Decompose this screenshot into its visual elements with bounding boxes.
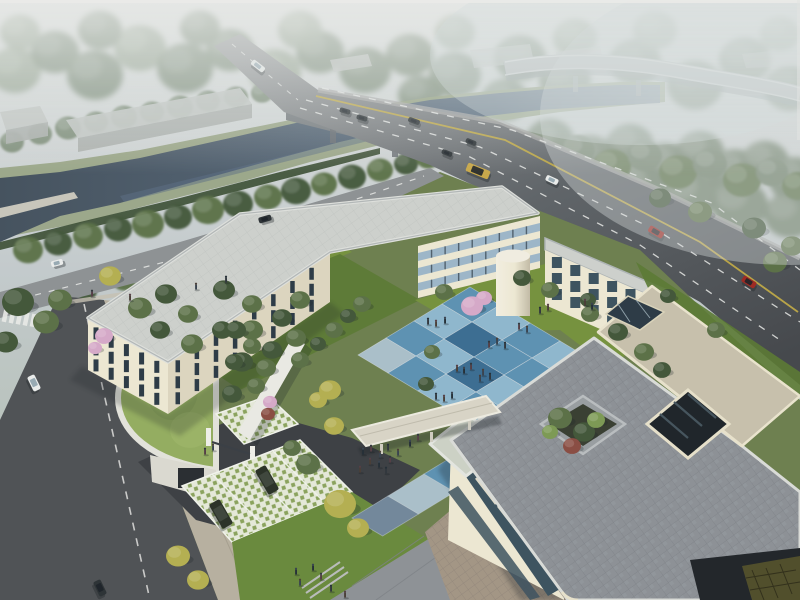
person <box>488 342 490 347</box>
tree-highlight <box>326 492 344 506</box>
mullion <box>526 226 527 234</box>
tree-highlight <box>189 572 201 582</box>
person <box>91 291 93 296</box>
tree-highlight <box>225 193 242 207</box>
window <box>139 368 144 380</box>
mullion <box>444 246 445 254</box>
tree-highlight <box>256 187 271 200</box>
window <box>139 384 144 396</box>
mullion <box>512 230 513 238</box>
person-head <box>225 276 227 278</box>
stair-tower <box>496 256 530 316</box>
person-head <box>456 365 458 367</box>
mullion <box>431 280 432 288</box>
tree-highlight <box>588 413 598 421</box>
tree-highlight <box>575 424 587 434</box>
person <box>539 308 541 313</box>
tree-highlight <box>326 323 336 331</box>
person-head <box>204 448 206 450</box>
person-head <box>443 395 445 397</box>
tree-highlight <box>311 338 320 345</box>
person <box>320 574 322 579</box>
person-head <box>482 369 484 371</box>
person-head <box>195 283 197 285</box>
person-head <box>489 373 491 375</box>
person <box>456 366 458 371</box>
person-head <box>91 290 93 292</box>
person <box>443 396 445 401</box>
mullion <box>485 266 486 274</box>
mullion <box>472 255 473 263</box>
mullion <box>485 251 486 259</box>
tree-highlight <box>636 345 647 354</box>
person-head <box>369 458 371 460</box>
tree-highlight <box>134 212 152 226</box>
tree-highlight <box>183 336 195 346</box>
tree-highlight <box>228 323 239 332</box>
tree-highlight <box>180 307 191 316</box>
window <box>176 360 181 372</box>
window <box>290 281 295 293</box>
person-head <box>385 467 387 469</box>
person-head <box>379 451 381 453</box>
person <box>470 364 472 369</box>
person <box>496 339 498 344</box>
window <box>109 368 114 380</box>
window <box>570 297 580 308</box>
tree-highlight <box>610 325 621 334</box>
tree-highlight <box>349 520 361 530</box>
tree-highlight <box>298 455 311 466</box>
person <box>547 305 549 310</box>
window <box>154 393 159 405</box>
person <box>344 592 346 597</box>
person <box>369 459 371 464</box>
mullion <box>431 265 432 273</box>
person <box>129 295 131 300</box>
window <box>309 268 314 280</box>
person <box>504 343 506 348</box>
person-head <box>129 294 131 296</box>
person-head <box>212 444 214 446</box>
gate-pillar <box>206 428 211 446</box>
person-head <box>435 393 437 395</box>
stair-tower-top <box>496 250 530 263</box>
person-head <box>496 338 498 340</box>
tree-highlight <box>258 361 269 370</box>
tree-highlight <box>274 311 285 320</box>
person <box>397 450 399 455</box>
person-head <box>591 303 593 305</box>
window <box>214 366 219 378</box>
tree-highlight <box>46 233 61 246</box>
person-head <box>387 444 389 446</box>
tree-highlight <box>15 239 32 253</box>
person <box>389 457 391 462</box>
person-head <box>378 461 380 463</box>
person-head <box>362 448 364 450</box>
person <box>417 435 419 440</box>
person-head <box>344 591 346 593</box>
tree-highlight <box>514 271 524 279</box>
tree-highlight <box>425 346 434 353</box>
person-head <box>397 449 399 451</box>
window <box>154 361 159 373</box>
person-head <box>299 579 301 581</box>
tree-highlight <box>89 343 97 349</box>
person <box>479 376 481 381</box>
window <box>570 265 580 276</box>
tree-highlight <box>708 323 718 331</box>
tree-highlight <box>152 323 163 332</box>
tree-highlight <box>264 397 272 403</box>
mullion <box>444 276 445 284</box>
person <box>584 300 586 305</box>
person <box>591 304 593 309</box>
window <box>589 273 599 284</box>
person-head <box>504 342 506 344</box>
person <box>330 586 332 591</box>
tree-highlight <box>284 441 294 449</box>
person <box>435 321 437 326</box>
person <box>427 319 429 324</box>
person-head <box>295 568 297 570</box>
tree-highlight <box>354 297 364 305</box>
tree-highlight <box>436 285 446 293</box>
person-head <box>312 564 314 566</box>
person <box>295 569 297 574</box>
window <box>176 392 181 404</box>
person <box>451 393 453 398</box>
tree-highlight <box>661 290 670 297</box>
person-head <box>470 363 472 365</box>
tree-highlight <box>244 297 255 306</box>
window <box>607 281 617 292</box>
tree-highlight <box>214 323 225 332</box>
person-head <box>584 299 586 301</box>
person-head <box>389 456 391 458</box>
person-head <box>479 375 481 377</box>
tree-highlight <box>313 174 327 186</box>
mullion <box>485 236 486 244</box>
window <box>124 360 129 372</box>
window <box>124 376 129 388</box>
person-head <box>526 326 528 328</box>
person-head <box>417 434 419 436</box>
tree-highlight <box>168 547 181 558</box>
window <box>154 377 159 389</box>
person-head <box>444 317 446 319</box>
person-head <box>320 573 322 575</box>
mullion <box>472 240 473 248</box>
window <box>214 350 219 362</box>
window <box>139 352 144 364</box>
person-head <box>427 318 429 320</box>
person <box>444 318 446 323</box>
person-head <box>488 341 490 343</box>
person <box>212 445 214 450</box>
tree-highlight <box>582 307 592 315</box>
person-head <box>518 323 520 325</box>
tree-highlight <box>96 329 106 337</box>
tree-highlight <box>166 207 181 220</box>
window <box>195 379 200 391</box>
person <box>195 284 197 289</box>
tree-highlight <box>75 225 92 239</box>
person-head <box>435 320 437 322</box>
person <box>312 565 314 570</box>
tree-highlight <box>244 339 254 347</box>
tree-highlight <box>194 198 212 212</box>
tree-highlight <box>550 409 563 420</box>
person <box>204 449 206 454</box>
person <box>518 324 520 329</box>
person <box>482 370 484 375</box>
tree-highlight <box>262 409 270 415</box>
tree-highlight <box>101 268 113 278</box>
tree-highlight <box>542 283 552 291</box>
mullion <box>444 261 445 269</box>
person-head <box>330 585 332 587</box>
person <box>489 374 491 379</box>
person <box>379 452 381 457</box>
tree-highlight <box>35 312 49 324</box>
person-head <box>451 392 453 394</box>
person <box>526 327 528 332</box>
tree-highlight <box>310 393 320 401</box>
person-head <box>359 466 361 468</box>
mullion <box>458 258 459 266</box>
window <box>271 326 276 338</box>
tree-highlight <box>321 382 333 392</box>
window <box>309 284 314 296</box>
person-head <box>370 445 372 447</box>
window <box>124 344 129 356</box>
person-head <box>547 304 549 306</box>
tree-highlight <box>50 291 63 302</box>
tree-highlight <box>564 439 574 447</box>
window <box>176 376 181 388</box>
person <box>370 446 372 451</box>
person-head <box>539 307 541 309</box>
tree-highlight <box>326 419 337 428</box>
tree-highlight <box>463 298 475 308</box>
tree-highlight <box>248 379 258 387</box>
person <box>409 441 411 446</box>
person <box>378 462 380 467</box>
tree-highlight <box>477 292 486 299</box>
window <box>195 363 200 375</box>
window <box>552 273 562 284</box>
mullion <box>458 243 459 251</box>
tree-highlight <box>264 343 275 352</box>
tree-highlight <box>341 310 350 317</box>
person-head <box>409 440 411 442</box>
window <box>109 352 114 364</box>
person <box>435 394 437 399</box>
mullion <box>458 273 459 281</box>
person <box>385 468 387 473</box>
mullion <box>472 270 473 278</box>
person <box>387 445 389 450</box>
tree-highlight <box>4 290 22 304</box>
tree-highlight <box>288 331 299 340</box>
top-border <box>0 0 800 3</box>
tree-highlight <box>224 387 235 396</box>
tree-highlight <box>292 353 302 361</box>
person <box>225 277 227 282</box>
window <box>94 359 99 371</box>
tree-highlight <box>654 363 664 371</box>
aerial-rendering <box>0 0 800 600</box>
mullion <box>499 233 500 241</box>
person <box>362 449 364 454</box>
person <box>359 467 361 472</box>
window <box>570 281 580 292</box>
person-head <box>463 367 465 369</box>
rendering-canvas <box>0 0 800 600</box>
window <box>271 294 276 306</box>
person <box>299 580 301 585</box>
window <box>552 257 562 268</box>
tree-highlight <box>226 355 236 363</box>
mullion <box>526 241 527 249</box>
mullion <box>431 250 432 258</box>
tree-highlight <box>292 293 303 302</box>
tree-highlight <box>543 426 552 433</box>
tree-highlight <box>157 286 169 296</box>
tree-highlight <box>106 219 121 232</box>
person <box>463 368 465 373</box>
tree-highlight <box>283 180 300 194</box>
tree-highlight <box>419 378 428 385</box>
